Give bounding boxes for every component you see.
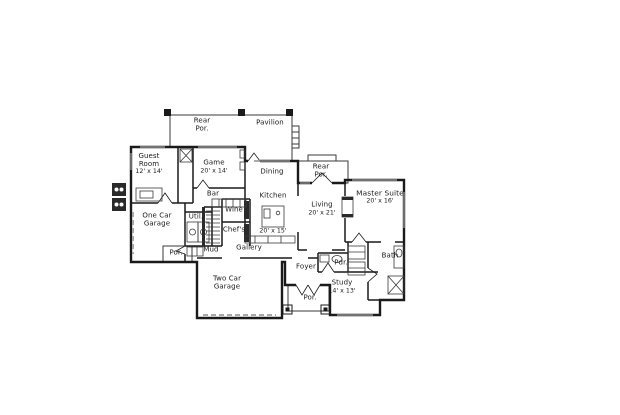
label-mud: Mud <box>203 246 218 254</box>
label-bath: Bath <box>382 252 399 260</box>
label-dining: Dining <box>260 168 283 176</box>
kitchen-counter <box>245 236 295 243</box>
label-rear-porch-right: Rear Por. <box>313 164 329 179</box>
label-master-suite: Master Suite 20' x 16' <box>356 190 404 205</box>
label-guest-room: Guest Room 12' x 14' <box>135 153 162 176</box>
label-porch-left: Por. <box>169 249 182 257</box>
ac-units <box>112 183 126 211</box>
label-bar: Bar <box>207 190 219 198</box>
label-utility: Util. <box>189 213 203 221</box>
label-one-car-garage: One Car Garage <box>142 213 171 228</box>
floor-plan-canvas: Rear Por. Pavilion Guest Room 12' x 14' … <box>0 0 620 415</box>
label-chefs: Chef's <box>223 226 245 234</box>
label-rear-porch-top: Rear Por. <box>194 118 210 133</box>
label-kitchen: Kitchen <box>259 192 286 200</box>
label-living: Living 20' x 21' <box>308 202 335 217</box>
label-powder: Pdr. <box>334 259 348 267</box>
label-porch-front: Por. <box>303 294 316 302</box>
label-study: Study 14' x 13' <box>328 280 355 295</box>
stair-treads <box>206 211 220 243</box>
label-wine: Wine <box>225 206 243 214</box>
shower <box>388 276 404 294</box>
label-pavilion: Pavilion <box>256 119 284 127</box>
label-game: Game 20' x 14' <box>200 160 227 175</box>
label-two-car-garage: Two Car Garage <box>213 276 241 291</box>
fireplace <box>342 197 353 217</box>
label-foyer: Foyer <box>296 263 316 271</box>
label-kitchen-dim: 20' x 15' <box>259 227 286 235</box>
label-gallery: Gallery <box>236 244 262 252</box>
